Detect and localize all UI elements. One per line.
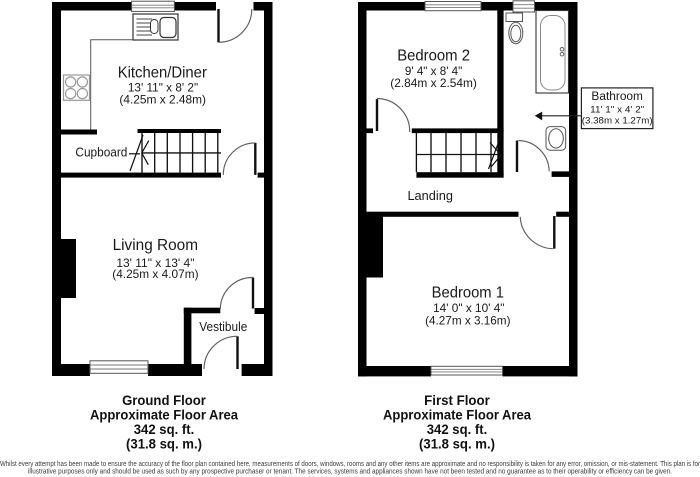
svg-text:First Floor: First Floor xyxy=(424,393,490,408)
svg-text:(31.8 sq. m.): (31.8 sq. m.) xyxy=(419,437,495,452)
svg-text:11' 1" x 4' 2": 11' 1" x 4' 2" xyxy=(590,104,644,115)
svg-text:Bathroom: Bathroom xyxy=(591,91,643,103)
svg-text:Bedroom 1: Bedroom 1 xyxy=(432,284,504,301)
svg-text:(4.25m x 4.07m): (4.25m x 4.07m) xyxy=(112,267,198,281)
svg-text:Ground Floor: Ground Floor xyxy=(122,393,207,408)
svg-text:Cupboard: Cupboard xyxy=(75,145,127,160)
svg-text:14' 0" x 10' 4": 14' 0" x 10' 4" xyxy=(433,301,504,315)
svg-text:Landing: Landing xyxy=(407,188,453,203)
svg-text:Kitchen/Diner: Kitchen/Diner xyxy=(118,64,208,81)
svg-text:(4.25m x 2.48m): (4.25m x 2.48m) xyxy=(119,93,206,107)
svg-text:(31.8 sq. m.): (31.8 sq. m.) xyxy=(126,437,202,452)
svg-text:(4.27m x 3.16m): (4.27m x 3.16m) xyxy=(425,314,510,328)
svg-text:(3.38m x 1.27m): (3.38m x 1.27m) xyxy=(582,115,653,126)
svg-text:(2.84m x 2.54m): (2.84m x 2.54m) xyxy=(390,76,477,90)
svg-text:Approximate Floor Area: Approximate Floor Area xyxy=(90,407,239,422)
svg-text:Whilst every attempt has been: Whilst every attempt has been made to en… xyxy=(0,461,700,468)
svg-text:342 sq. ft.: 342 sq. ft. xyxy=(134,422,195,437)
svg-text:illustrative purposes only and: illustrative purposes only and should be… xyxy=(28,469,672,476)
svg-text:Bedroom 2: Bedroom 2 xyxy=(397,47,470,64)
svg-text:342 sq. ft.: 342 sq. ft. xyxy=(427,422,488,437)
svg-text:Living Room: Living Room xyxy=(113,237,198,254)
svg-text:Vestibule: Vestibule xyxy=(199,320,247,334)
svg-text:Approximate Floor Area: Approximate Floor Area xyxy=(383,407,532,422)
